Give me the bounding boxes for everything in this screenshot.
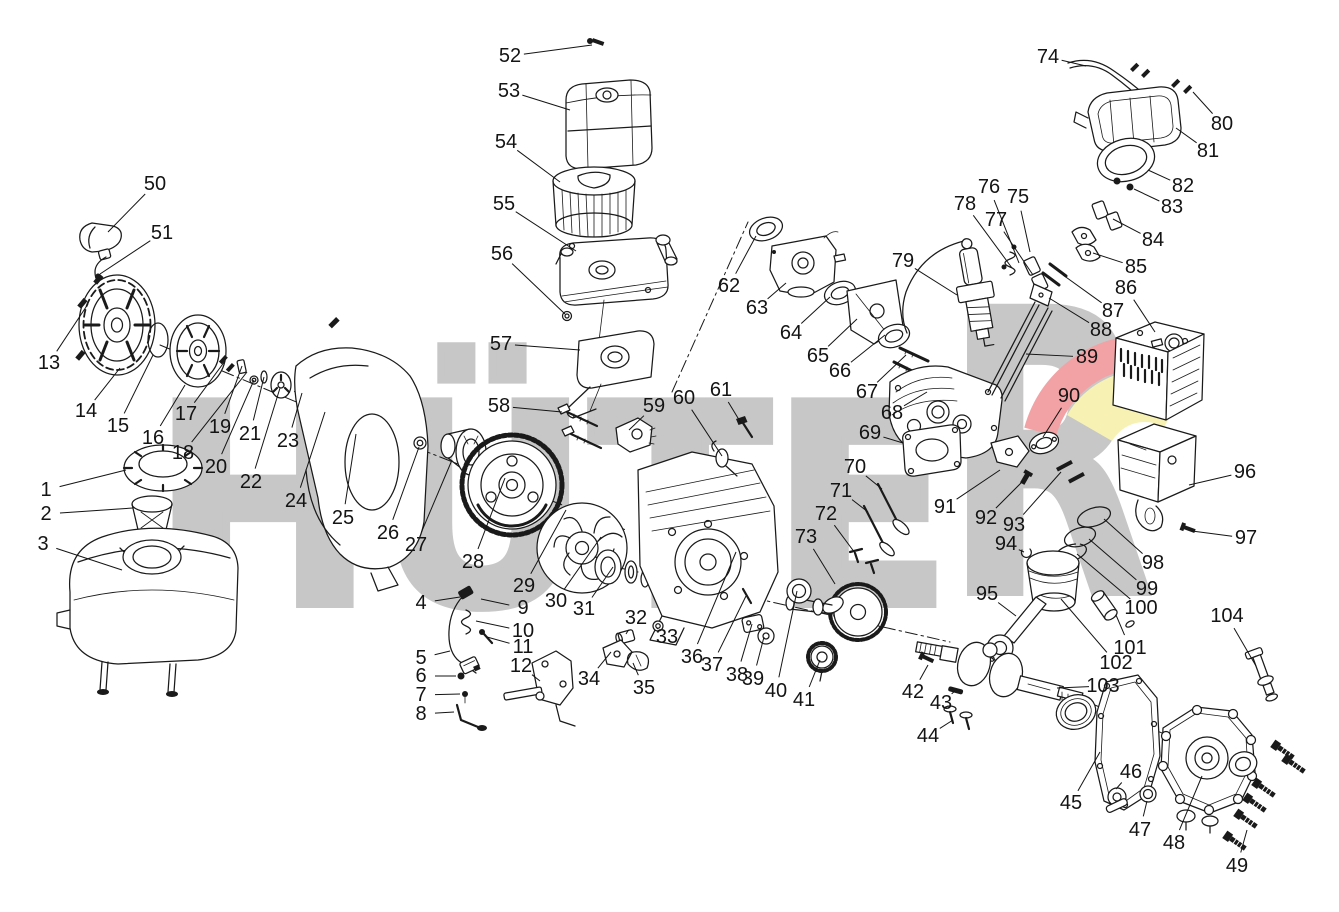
part-number-82: 82 <box>1172 175 1194 197</box>
part-number-56: 56 <box>491 243 513 265</box>
part-number-58: 58 <box>488 395 510 417</box>
part-number-26: 26 <box>377 522 399 544</box>
part-number-54: 54 <box>495 131 517 153</box>
part-number-62: 62 <box>718 275 740 297</box>
part-number-4: 4 <box>415 592 426 614</box>
part-number-43: 43 <box>930 692 952 714</box>
part-label-54: 54 <box>495 131 560 182</box>
part-number-22: 22 <box>240 471 262 493</box>
part-label-80: 80 <box>1193 92 1233 135</box>
part-label-2: 2 <box>40 503 133 525</box>
part-number-16: 16 <box>142 427 164 449</box>
part-number-94: 94 <box>995 533 1017 555</box>
part-number-49: 49 <box>1226 855 1248 877</box>
part-number-15: 15 <box>107 415 129 437</box>
leader-line-2 <box>60 508 133 513</box>
part-label-45: 45 <box>1060 752 1100 814</box>
part-number-75: 75 <box>1007 186 1029 208</box>
part-label-42: 42 <box>902 665 928 703</box>
part-number-59: 59 <box>643 395 665 417</box>
part-number-57: 57 <box>490 333 512 355</box>
part-label-56: 56 <box>491 243 565 314</box>
part-number-31: 31 <box>573 598 595 620</box>
part-number-46: 46 <box>1120 761 1142 783</box>
part-number-77: 77 <box>985 209 1007 231</box>
part-number-52: 52 <box>499 45 521 67</box>
part-label-53: 53 <box>498 80 570 110</box>
part-number-32: 32 <box>625 607 647 629</box>
part-number-27: 27 <box>405 534 427 556</box>
leader-line-83 <box>1134 189 1159 201</box>
part-number-40: 40 <box>765 680 787 702</box>
part-number-45: 45 <box>1060 792 1082 814</box>
part-label-62: 62 <box>718 236 756 297</box>
part-number-81: 81 <box>1197 140 1219 162</box>
part-number-13: 13 <box>38 352 60 374</box>
leader-line-97 <box>1192 531 1232 536</box>
leader-line-52 <box>524 45 592 54</box>
leader-line-8 <box>435 712 454 713</box>
part-label-14: 14 <box>75 368 120 422</box>
part-label-33: 33 <box>656 626 678 648</box>
part-number-21: 21 <box>239 423 261 445</box>
part-number-18: 18 <box>172 442 194 464</box>
part-number-17: 17 <box>175 403 197 425</box>
part-number-69: 69 <box>859 422 881 444</box>
part-number-79: 79 <box>892 250 914 272</box>
part-number-96: 96 <box>1234 461 1256 483</box>
part-label-52: 52 <box>499 45 592 67</box>
part-number-74: 74 <box>1037 46 1059 68</box>
leader-line-82 <box>1148 170 1170 180</box>
leader-line-65 <box>828 319 857 346</box>
part-number-19: 19 <box>209 416 231 438</box>
part-number-90: 90 <box>1058 385 1080 407</box>
part-number-78: 78 <box>954 193 976 215</box>
part-number-55: 55 <box>493 193 515 215</box>
leader-line-96 <box>1189 475 1231 485</box>
part-number-64: 64 <box>780 322 802 344</box>
part-number-102: 102 <box>1099 652 1132 674</box>
part-number-1: 1 <box>40 479 51 501</box>
part-number-29: 29 <box>513 575 535 597</box>
part-label-44: 44 <box>917 720 953 747</box>
part-number-33: 33 <box>656 626 678 648</box>
part-number-92: 92 <box>975 507 997 529</box>
leader-line-7 <box>435 694 460 695</box>
part-label-47: 47 <box>1129 801 1151 841</box>
part-number-63: 63 <box>746 297 768 319</box>
part-number-70: 70 <box>844 456 866 478</box>
part-number-53: 53 <box>498 80 520 102</box>
part-number-67: 67 <box>856 381 878 403</box>
part-number-68: 68 <box>881 402 903 424</box>
leader-line-64 <box>801 297 830 324</box>
part-number-14: 14 <box>75 400 97 422</box>
part-number-60: 60 <box>673 387 695 409</box>
diagram-canvas: HÜTE R <box>0 0 1339 912</box>
part-label-8: 8 <box>415 703 454 725</box>
part-number-84: 84 <box>1142 229 1164 251</box>
part-number-20: 20 <box>205 456 227 478</box>
part-label-74: 74 <box>1037 46 1086 68</box>
part-number-42: 42 <box>902 681 924 703</box>
part-number-89: 89 <box>1076 346 1098 368</box>
part-label-96: 96 <box>1189 461 1256 485</box>
leader-line-80 <box>1193 92 1213 114</box>
part-number-103: 103 <box>1086 675 1119 697</box>
part-number-98: 98 <box>1142 552 1164 574</box>
part-number-30: 30 <box>545 590 567 612</box>
part-number-91: 91 <box>934 496 956 518</box>
part-number-50: 50 <box>144 173 166 195</box>
part-number-3: 3 <box>37 533 48 555</box>
part-number-66: 66 <box>829 360 851 382</box>
part-number-88: 88 <box>1090 319 1112 341</box>
part-label-1: 1 <box>40 470 126 501</box>
part-number-97: 97 <box>1235 527 1257 549</box>
part-number-100: 100 <box>1124 597 1157 619</box>
leader-line-56 <box>512 264 565 314</box>
part-number-51: 51 <box>151 222 173 244</box>
part-number-86: 86 <box>1115 277 1137 299</box>
part-number-72: 72 <box>815 503 837 525</box>
part-number-39: 39 <box>742 668 764 690</box>
leader-line-50 <box>108 194 145 232</box>
part-number-61: 61 <box>710 379 732 401</box>
part-number-24: 24 <box>285 490 307 512</box>
leader-line-1 <box>60 470 126 487</box>
leader-line-104 <box>1234 628 1256 666</box>
part-number-65: 65 <box>807 345 829 367</box>
part-number-41: 41 <box>793 689 815 711</box>
leader-line-53 <box>522 95 570 110</box>
crankcase-cover-drawing <box>1095 647 1307 852</box>
leader-line-54 <box>517 150 560 182</box>
part-number-23: 23 <box>277 430 299 452</box>
part-number-8: 8 <box>415 703 426 725</box>
part-number-2: 2 <box>40 503 51 525</box>
part-number-73: 73 <box>795 526 817 548</box>
part-label-97: 97 <box>1192 527 1257 549</box>
part-number-44: 44 <box>917 725 939 747</box>
part-number-104: 104 <box>1210 605 1243 627</box>
diagram-page: HÜTE R <box>0 0 1339 912</box>
part-number-48: 48 <box>1163 832 1185 854</box>
leader-line-47 <box>1143 801 1147 816</box>
part-number-37: 37 <box>701 654 723 676</box>
part-number-83: 83 <box>1161 196 1183 218</box>
part-label-63: 63 <box>746 283 786 319</box>
part-label-43: 43 <box>930 691 955 714</box>
part-number-35: 35 <box>633 677 655 699</box>
part-number-76: 76 <box>978 176 1000 198</box>
part-number-25: 25 <box>332 507 354 529</box>
part-number-95: 95 <box>976 583 998 605</box>
part-number-71: 71 <box>830 480 852 502</box>
leader-line-44 <box>940 720 953 728</box>
part-number-9: 9 <box>517 597 528 619</box>
part-number-36: 36 <box>681 646 703 668</box>
part-label-82: 82 <box>1148 170 1194 197</box>
part-number-12: 12 <box>510 655 532 677</box>
part-number-28: 28 <box>462 551 484 573</box>
part-number-85: 85 <box>1125 256 1147 278</box>
part-number-47: 47 <box>1129 819 1151 841</box>
part-number-80: 80 <box>1211 113 1233 135</box>
part-number-34: 34 <box>578 668 600 690</box>
part-label-64: 64 <box>780 297 830 344</box>
